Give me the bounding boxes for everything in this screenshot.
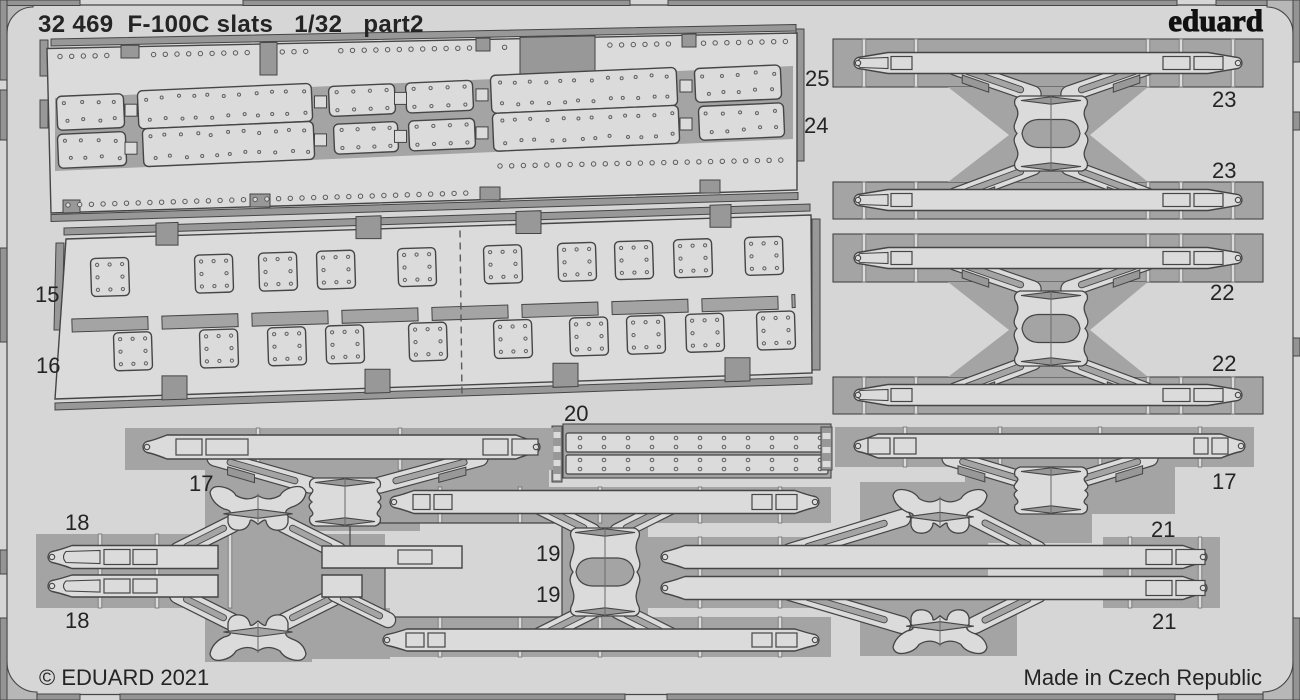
svg-text:16: 16 [36,353,60,378]
svg-text:24: 24 [804,113,828,138]
svg-text:eduard: eduard [1168,3,1263,38]
svg-text:32 469 F-100C slats 1/32: 32 469 F-100C slats 1/32 part2 [38,11,424,38]
svg-text:20: 20 [564,401,588,426]
svg-text:17: 17 [1212,469,1236,494]
svg-text:21: 21 [1151,517,1175,542]
svg-text:21: 21 [1152,609,1176,634]
svg-text:22: 22 [1210,280,1234,305]
svg-text:25: 25 [805,66,829,91]
svg-text:© EDUARD 2021: © EDUARD 2021 [39,665,209,690]
svg-text:23: 23 [1212,158,1236,183]
svg-text:18: 18 [65,510,89,535]
svg-text:19: 19 [536,582,560,607]
svg-text:Made in Czech Republic: Made in Czech Republic [1024,665,1262,690]
svg-text:18: 18 [65,608,89,633]
svg-text:19: 19 [536,541,560,566]
svg-text:22: 22 [1212,351,1236,376]
svg-text:15: 15 [35,282,59,307]
svg-text:23: 23 [1212,87,1236,112]
